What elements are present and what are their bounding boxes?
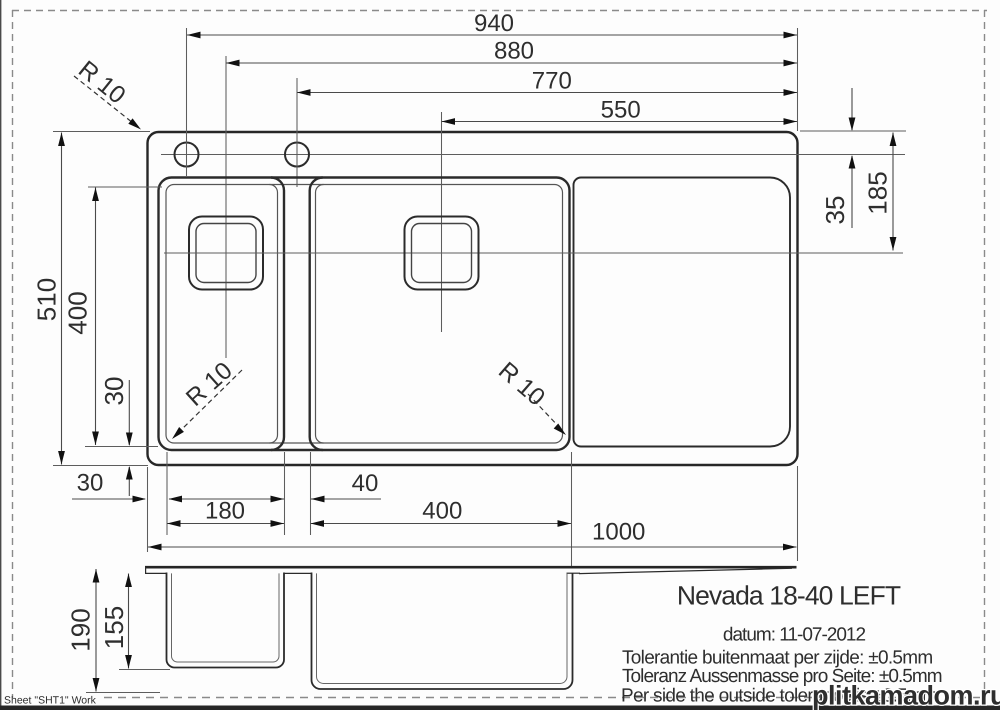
svg-text:550: 550 (601, 97, 641, 124)
svg-text:30: 30 (99, 377, 129, 406)
svg-text:190: 190 (66, 608, 96, 651)
svg-text:770: 770 (532, 68, 572, 95)
svg-text:1000: 1000 (592, 519, 645, 546)
svg-text:datum: 11-07-2012: datum: 11-07-2012 (723, 625, 866, 646)
svg-text:plitkamadom.ru: plitkamadom.ru (812, 681, 1000, 710)
svg-text:180: 180 (205, 498, 245, 525)
svg-text:Sheet "SHT1" Work: Sheet "SHT1" Work (4, 695, 97, 707)
svg-text:880: 880 (494, 38, 534, 65)
svg-text:155: 155 (99, 606, 129, 649)
svg-text:40: 40 (352, 470, 379, 497)
svg-text:Nevada 18-40 LEFT: Nevada 18-40 LEFT (677, 581, 901, 611)
svg-text:400: 400 (63, 291, 93, 334)
svg-text:400: 400 (422, 498, 462, 525)
svg-text:510: 510 (32, 278, 62, 321)
svg-text:185: 185 (863, 171, 893, 214)
svg-text:940: 940 (474, 10, 514, 37)
svg-text:35: 35 (820, 196, 850, 225)
svg-text:30: 30 (77, 470, 104, 497)
